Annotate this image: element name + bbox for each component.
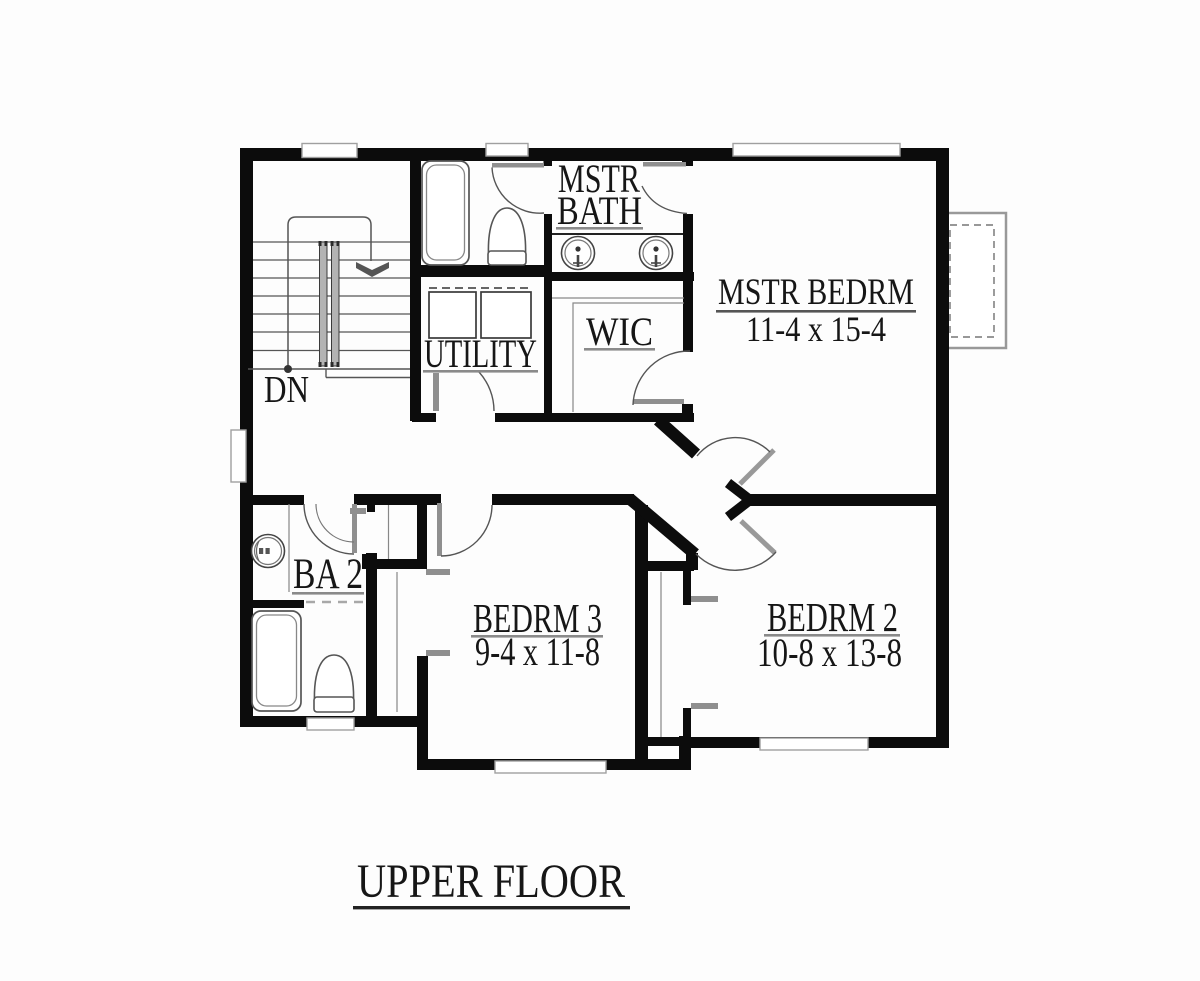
svg-text:BATH: BATH [557,188,642,233]
svg-text:9-4 x 11-8: 9-4 x 11-8 [475,629,600,674]
svg-text:BA 2: BA 2 [293,551,363,598]
svg-text:MSTR BEDRM: MSTR BEDRM [718,272,914,313]
svg-text:10-8 x 13-8: 10-8 x 13-8 [757,630,902,675]
svg-text:11-4 x 15-4: 11-4 x 15-4 [746,309,886,349]
svg-text:WIC: WIC [586,309,653,354]
svg-text:UPPER FLOOR: UPPER FLOOR [357,855,625,908]
svg-text:DN: DN [264,369,309,411]
svg-text:UTILITY: UTILITY [424,331,537,376]
